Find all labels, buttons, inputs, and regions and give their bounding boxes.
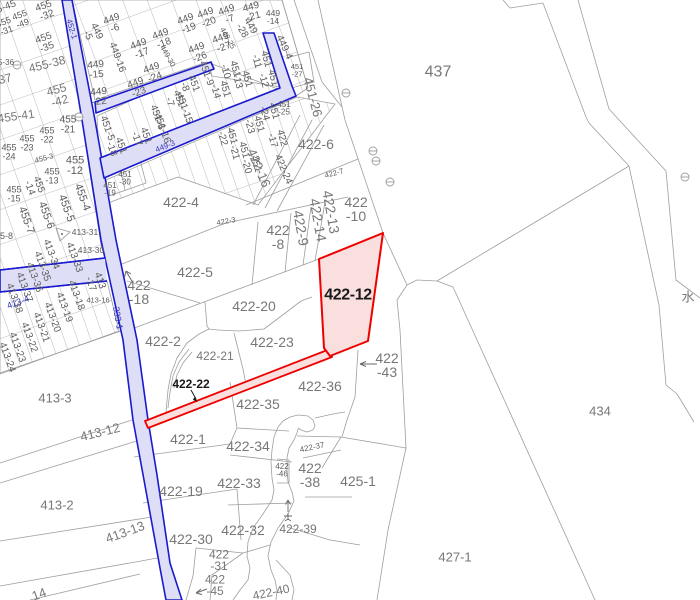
svg-text:422-1: 422-1 (170, 431, 206, 447)
svg-text:422-2: 422-2 (145, 333, 181, 349)
svg-text:451-30: 451-30 (118, 170, 132, 187)
svg-text:413-3: 413-3 (38, 391, 71, 406)
svg-text:422-5: 422-5 (177, 264, 213, 280)
svg-text:449-14: 449-14 (266, 8, 280, 26)
svg-text:422-30: 422-30 (169, 531, 213, 547)
svg-text:422-10: 422-10 (344, 194, 368, 224)
svg-text:422-36: 422-36 (298, 378, 342, 394)
svg-text:422-43: 422-43 (375, 350, 399, 380)
svg-text:451-25: 451-25 (277, 100, 291, 117)
svg-text:422-22: 422-22 (172, 377, 210, 391)
svg-text:455-21: 455-21 (60, 115, 77, 136)
svg-text:422-38: 422-38 (298, 460, 322, 490)
svg-text:425-1: 425-1 (340, 473, 376, 489)
svg-text:水: 水 (681, 290, 694, 305)
svg-text:422-6: 422-6 (298, 136, 334, 152)
svg-text:422-18: 422-18 (127, 277, 151, 307)
svg-text:449-22: 449-22 (90, 86, 109, 108)
svg-text:413-31: 413-31 (72, 227, 99, 237)
svg-text:422-12: 422-12 (324, 287, 372, 304)
svg-text:422-21: 422-21 (196, 349, 234, 363)
svg-text:427-1: 427-1 (438, 550, 471, 565)
svg-text:422-46: 422-46 (275, 462, 289, 479)
svg-text:455-13: 455-13 (44, 167, 59, 186)
svg-text:55-8: 55-8 (0, 231, 13, 241)
svg-text:413-16: 413-16 (86, 296, 109, 305)
svg-text:451-19: 451-19 (103, 181, 117, 198)
svg-text:434: 434 (589, 404, 611, 419)
svg-text:455-12: 455-12 (66, 155, 84, 178)
svg-text:413-30: 413-30 (78, 245, 105, 255)
svg-text:422-23: 422-23 (250, 334, 294, 350)
svg-text:422-35: 422-35 (236, 396, 280, 412)
svg-text:422-20: 422-20 (232, 298, 276, 314)
svg-text:455-23: 455-23 (19, 134, 34, 153)
svg-text:422-34: 422-34 (226, 438, 270, 454)
svg-text:5-36: 5-36 (0, 58, 15, 67)
svg-text:455-15: 455-15 (6, 185, 21, 204)
svg-text:437: 437 (425, 64, 452, 81)
svg-text:422-45: 422-45 (205, 572, 225, 598)
svg-text:451-27: 451-27 (291, 62, 304, 78)
svg-text:422-33: 422-33 (217, 475, 261, 491)
svg-text:422-4: 422-4 (163, 194, 199, 210)
svg-text:422-39: 422-39 (279, 522, 317, 536)
svg-text:455-24: 455-24 (1, 143, 16, 162)
svg-text:422-31: 422-31 (209, 547, 229, 573)
svg-text:422-19: 422-19 (159, 483, 203, 499)
svg-text:413-2: 413-2 (40, 498, 73, 513)
svg-text:455-22: 455-22 (39, 126, 54, 145)
svg-text:422-32: 422-32 (221, 522, 265, 538)
svg-text:449-15: 449-15 (87, 59, 106, 81)
